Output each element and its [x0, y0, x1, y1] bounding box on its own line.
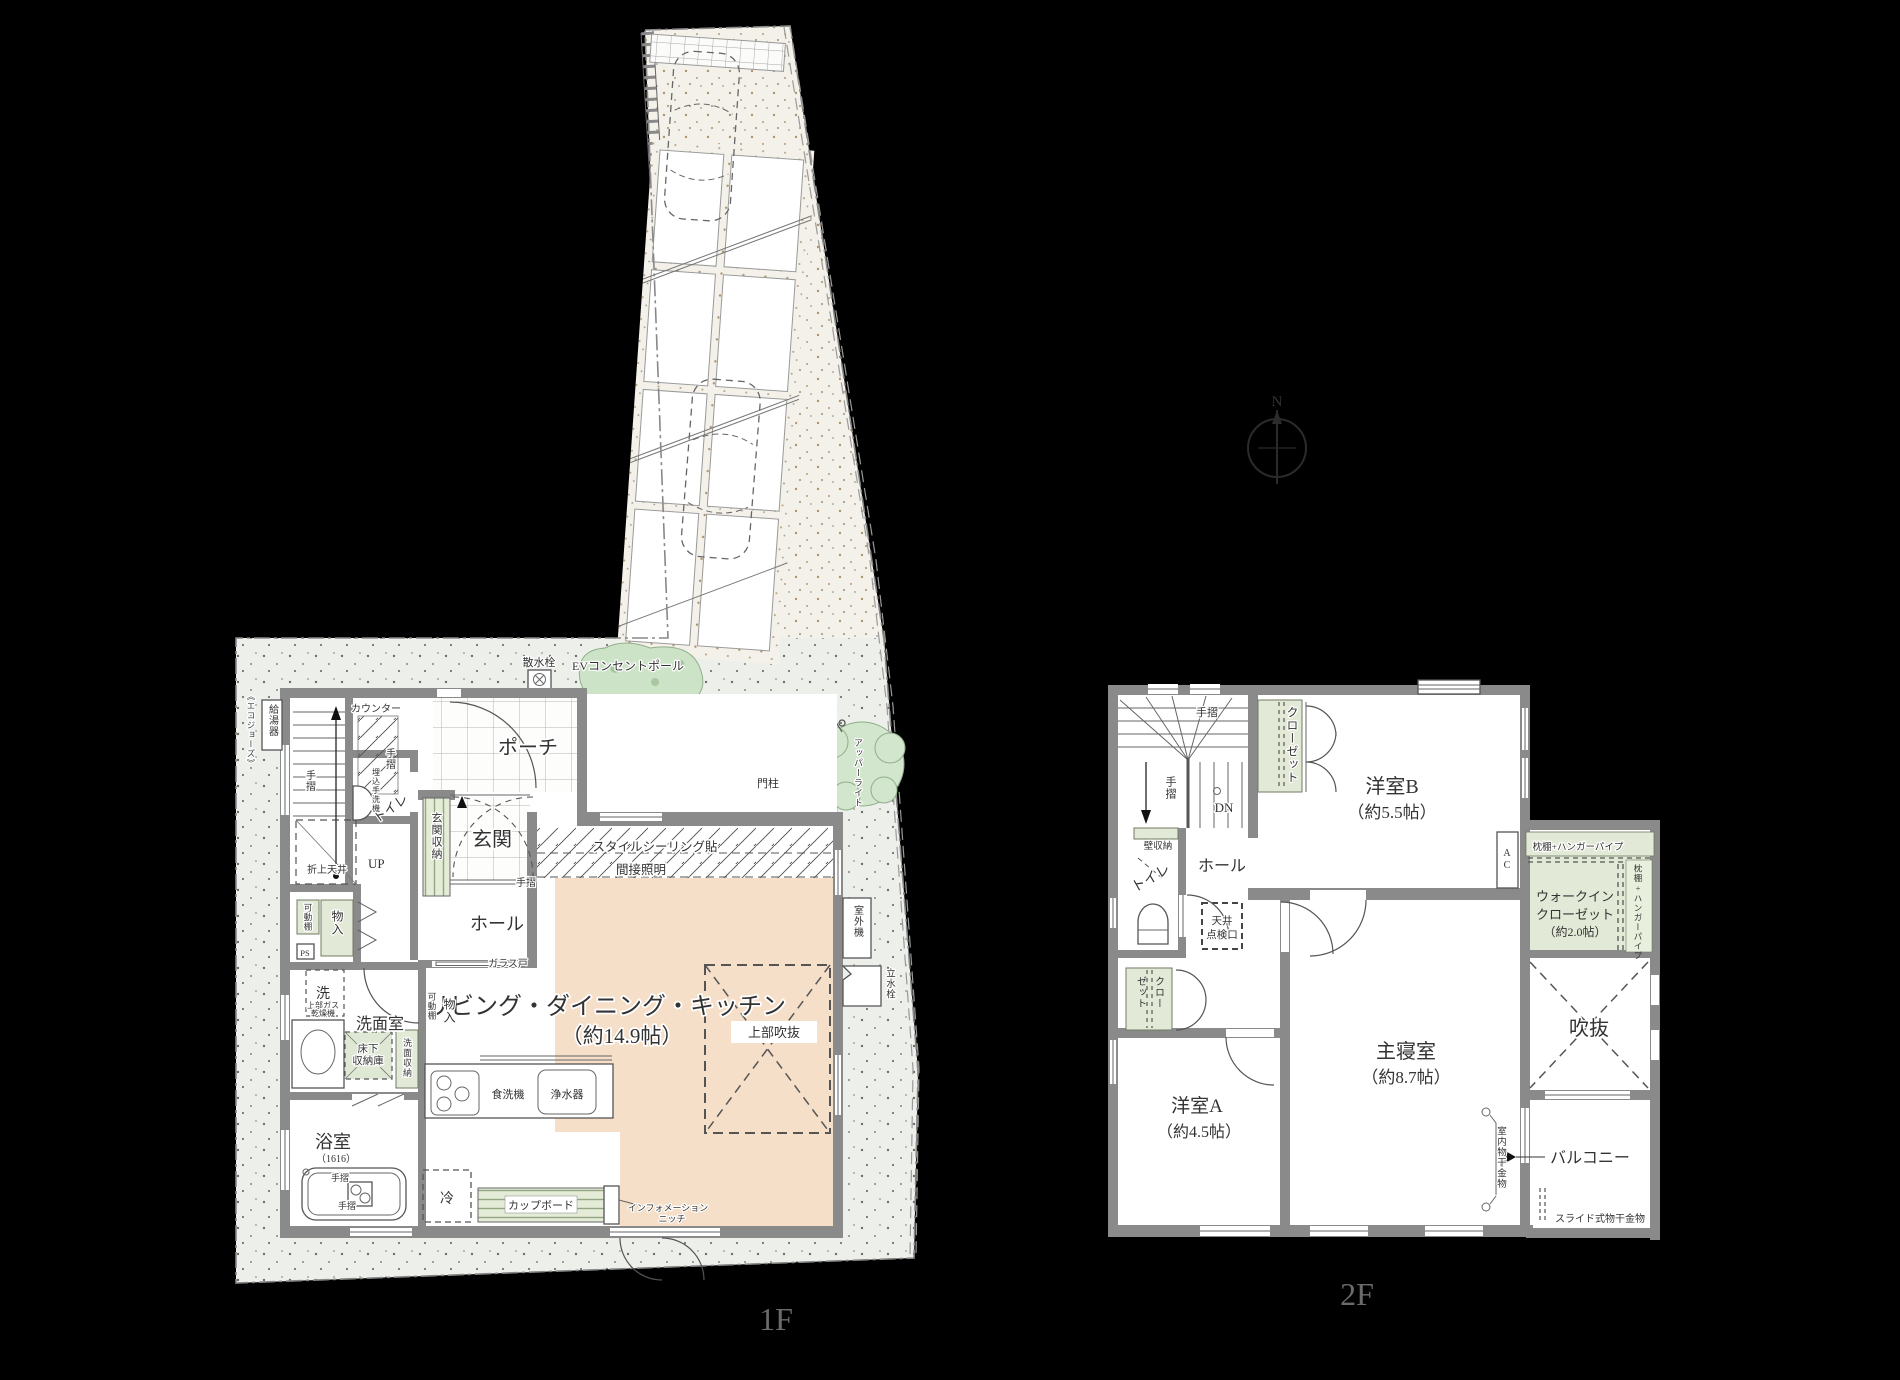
label-built-in-basin: 埋込手洗機	[372, 767, 381, 813]
label-underfloor-1: 床下	[358, 1042, 379, 1055]
label-closet-a2: ゼット	[1135, 976, 1147, 1009]
label-bath-size: （1616）	[316, 1153, 356, 1165]
label-handrail-genkan: 手摺	[516, 876, 536, 889]
label-void-2f: 吹抜	[1569, 1017, 1609, 1040]
label-handrail-2f-a: 手摺	[1196, 705, 1218, 719]
label-niche-1: インフォメーション	[628, 1203, 709, 1213]
label-outdoor-unit: 室外機	[852, 904, 864, 938]
label-movable-shelf: 可動棚	[303, 903, 313, 932]
label-handrail-bath2: 手摺	[338, 1200, 356, 1211]
label-ps: PS	[300, 948, 310, 958]
label-balcony: バルコニー	[1550, 1150, 1630, 1167]
floorplan-canvas: ポーチ 玄関 ホール 洗面室 浴室 （1616） トイレ UP リビング・ダイニ…	[0, 0, 1900, 1380]
label-water-purifier: 浄水器	[551, 1087, 584, 1101]
label-room-b: 洋室B	[1365, 775, 1418, 798]
floor1-building	[262, 688, 881, 1280]
label-water-heater: 給湯器	[267, 703, 279, 737]
label-gate-post: 門柱	[757, 776, 779, 790]
label-wall-storage: 壁収納	[1144, 840, 1173, 852]
label-porch: ポーチ	[498, 736, 558, 759]
label-style-ceiling: スタイルシーリング貼	[592, 839, 717, 854]
label-room-a: 洋室A	[1171, 1095, 1223, 1117]
label-sprinkler: 散水栓	[523, 655, 556, 669]
label-storage-kitchen: 物入	[442, 998, 456, 1024]
compass-icon	[1248, 410, 1306, 484]
sprinkler-tap	[528, 670, 551, 689]
label-closet-a1: クロー	[1153, 976, 1164, 1009]
label-ldk: リビング・ダイニング・キッチン	[426, 993, 786, 1020]
label-ldk-size: （約14.9帖）	[562, 1024, 683, 1048]
label-handrail-counter: 手摺	[384, 747, 396, 770]
label-niche-2: ニッチ	[658, 1214, 685, 1224]
label-upper-light: アッパーライト	[853, 738, 863, 808]
label-gas-dryer-2: 乾燥機	[311, 1008, 335, 1018]
label-handrail-stairs: 手摺	[304, 769, 316, 792]
floor1-title: 1F	[759, 1301, 793, 1337]
floor2-title: 2F	[1340, 1276, 1374, 1312]
label-underfloor-2: 収納庫	[352, 1054, 384, 1067]
label-ceiling-access-1: 天井	[1212, 914, 1233, 927]
label-hall-2f: ホール	[1198, 858, 1246, 875]
label-indirect-light: 間接照明	[616, 862, 666, 877]
label-fridge: 冷	[440, 1191, 454, 1207]
label-eco-jozu: 《エコジョーズ》	[246, 692, 256, 768]
label-wic-1: ウォークイン	[1536, 889, 1614, 904]
label-entrance-storage: 玄関収納	[430, 811, 443, 860]
label-dishwasher: 食洗機	[492, 1087, 525, 1101]
label-slide-hanger: スライド式物干金物	[1555, 1212, 1645, 1225]
label-wic-size: （約2.0帖）	[1543, 924, 1606, 939]
compass-north-label: N	[1272, 394, 1283, 410]
label-bedroom-size: （約8.7帖）	[1361, 1068, 1450, 1087]
floorplan-svg: ポーチ 玄関 ホール 洗面室 浴室 （1616） トイレ UP リビング・ダイニ…	[0, 0, 1900, 1380]
label-handrail-bath1: 手摺	[331, 1172, 349, 1183]
wall-storage-box	[1134, 828, 1178, 839]
label-glass-door: ガラス戸	[488, 958, 528, 970]
label-handrail-2f-b: 手摺	[1164, 775, 1177, 800]
label-room-b-size: （約5.5帖）	[1347, 803, 1436, 822]
label-indoor-hanger: 室内物干金物	[1495, 1125, 1507, 1189]
label-bedroom: 主寝室	[1376, 1040, 1436, 1063]
label-closet-b: クローゼット	[1285, 706, 1299, 784]
label-washer: 洗	[316, 986, 330, 1002]
label-counter: カウンター	[351, 703, 401, 715]
label-up: UP	[368, 856, 385, 871]
label-storage-hall: 物入	[330, 910, 344, 936]
label-room-a-size: （約4.5帖）	[1157, 1123, 1241, 1141]
label-bath: 浴室	[315, 1132, 351, 1152]
tap-box	[843, 966, 881, 1006]
label-pillow-shelf-h: 枕棚+ハンガーパイプ	[1533, 841, 1624, 853]
label-void-above: 上部吹抜	[748, 1025, 800, 1040]
label-hall-1f: ホール	[470, 914, 524, 934]
label-washroom: 洗面室	[356, 1015, 404, 1033]
label-dn: DN	[1215, 800, 1234, 815]
label-vanity-storage: 洗面収納	[402, 1037, 412, 1078]
label-ev-pole: EVコンセントポール	[572, 659, 684, 673]
label-ac: AC	[1502, 848, 1513, 872]
toilet-2f	[1138, 904, 1168, 944]
label-genkan: 玄関	[472, 828, 512, 851]
label-wic-2: クローゼット	[1536, 907, 1614, 922]
label-cupboard: カップボード	[508, 1199, 574, 1212]
label-tap: 立水栓	[884, 967, 896, 999]
label-pillow-shelf-v: 枕棚+ハンガーパイプ	[1633, 863, 1643, 960]
label-ceiling-access-2: 点検口	[1206, 928, 1238, 941]
label-raised-ceiling: 折上天井	[307, 863, 347, 876]
label-movable-shelf-k: 可動棚	[427, 992, 437, 1021]
